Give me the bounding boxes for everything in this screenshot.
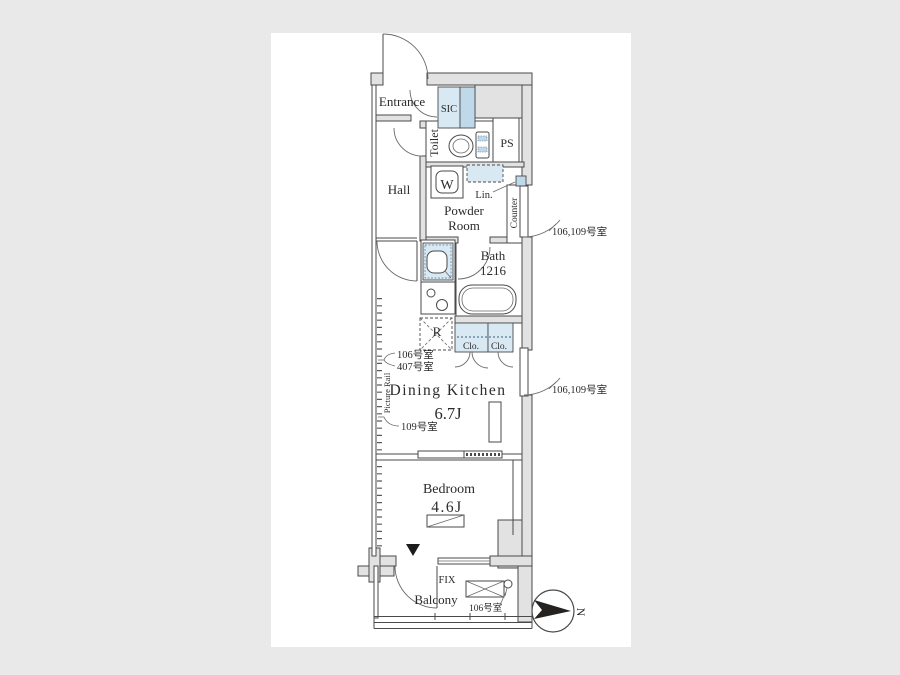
callout-rail-1: 106号室 (397, 348, 434, 361)
powder-room-label-2: Room (448, 218, 480, 233)
bathtub-icon (459, 285, 516, 314)
picture-rail-label: Picture Rail (382, 372, 392, 413)
refrigerator-label: R (433, 324, 442, 339)
bath-size-label: 1216 (480, 263, 507, 278)
counter-label: Counter (510, 197, 520, 228)
dining-kitchen-label: Dining Kitchen (390, 382, 507, 399)
sink-icon (427, 251, 447, 273)
closet-right-label: Clo. (491, 342, 507, 352)
callout-rail-2: 407号室 (397, 360, 434, 373)
callout-balcony: 106号室 (469, 602, 502, 614)
fix-window (438, 558, 490, 564)
washer-label: W (440, 178, 454, 193)
hall-label: Hall (388, 182, 411, 197)
bedroom-size-label: 4.6J (431, 499, 462, 516)
callout-dk-door: 106,109号室 (552, 383, 607, 396)
balcony-equipment-pad-icon (466, 581, 504, 597)
pipe-space-label: PS (500, 136, 513, 150)
linen-label: Lin. (475, 190, 492, 201)
compass-north-label: N (574, 608, 588, 617)
entrance-label: Entrance (379, 94, 425, 109)
fix-label: FIX (439, 575, 456, 586)
toilet-label: Toilet (427, 128, 441, 156)
kitchen-counter (421, 240, 455, 314)
linen-cabinet (516, 176, 526, 186)
stove-burner-icon (437, 300, 448, 311)
balcony-left-wall (374, 566, 378, 618)
sliding-door-panel (418, 451, 464, 458)
bath-label: Bath (481, 248, 506, 263)
sic-mirror-panel (460, 87, 475, 128)
dining-kitchen-size-label: 6.7J (434, 404, 462, 423)
sic-label: SIC (441, 104, 457, 115)
floorplan-page: N Entrance SIC Toilet PS Hall W Lin. Pow… (0, 0, 900, 675)
left-boundary-wall (372, 85, 376, 556)
balcony-label: Balcony (414, 592, 458, 607)
linen-shelf (467, 165, 503, 182)
callout-hall-door: 106,109号室 (552, 225, 607, 238)
bedroom-label: Bedroom (423, 482, 475, 497)
dk-column (489, 402, 501, 442)
powder-room-label-1: Powder (444, 203, 484, 218)
bedroom-shelf-icon (427, 515, 464, 527)
closet-left-label: Clo. (463, 342, 479, 352)
callout-rail-3: 109号室 (401, 420, 438, 433)
floorplan-image: N Entrance SIC Toilet PS Hall W Lin. Pow… (0, 0, 900, 675)
stove-burner-icon (427, 289, 435, 297)
